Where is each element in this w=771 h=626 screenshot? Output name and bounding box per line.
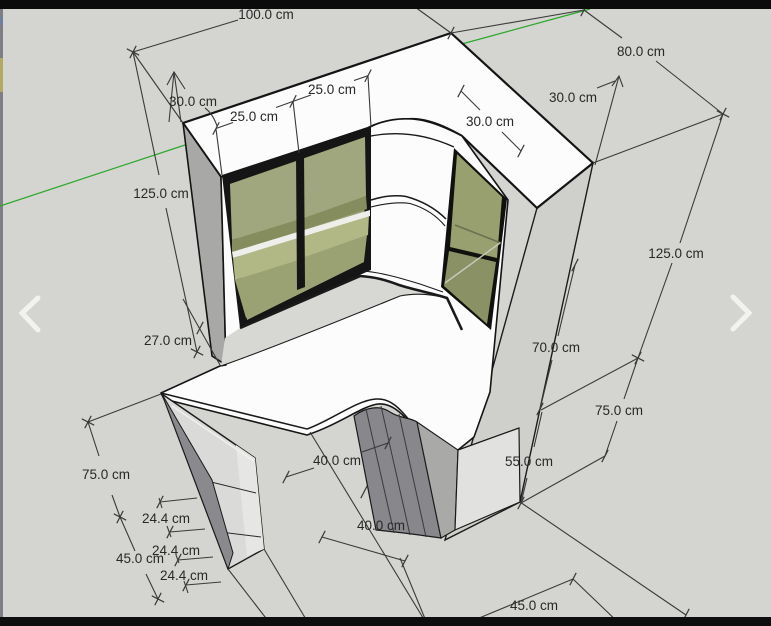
svg-text:100.0 cm: 100.0 cm bbox=[238, 7, 294, 22]
svg-text:125.0 cm: 125.0 cm bbox=[133, 186, 189, 201]
svg-text:40.0 cm: 40.0 cm bbox=[357, 518, 405, 533]
svg-text:40.0 cm: 40.0 cm bbox=[313, 453, 361, 468]
svg-text:80.0 cm: 80.0 cm bbox=[617, 44, 665, 59]
svg-text:27.0 cm: 27.0 cm bbox=[144, 333, 192, 348]
svg-text:30.0 cm: 30.0 cm bbox=[466, 114, 514, 129]
svg-text:30.0 cm: 30.0 cm bbox=[549, 90, 597, 105]
svg-text:75.0 cm: 75.0 cm bbox=[82, 467, 130, 482]
svg-text:25.0 cm: 25.0 cm bbox=[308, 82, 356, 97]
svg-text:30.0 cm: 30.0 cm bbox=[169, 94, 217, 109]
svg-text:75.0 cm: 75.0 cm bbox=[595, 403, 643, 418]
svg-text:70.0 cm: 70.0 cm bbox=[532, 340, 580, 355]
svg-text:25.0 cm: 25.0 cm bbox=[230, 109, 278, 124]
svg-text:55.0 cm: 55.0 cm bbox=[505, 454, 553, 469]
svg-text:24.4 cm: 24.4 cm bbox=[142, 511, 190, 526]
svg-text:45.0 cm: 45.0 cm bbox=[510, 598, 558, 613]
svg-text:24.4 cm: 24.4 cm bbox=[160, 568, 208, 583]
svg-text:45.0 cm: 45.0 cm bbox=[116, 551, 164, 566]
svg-text:125.0 cm: 125.0 cm bbox=[648, 246, 704, 261]
